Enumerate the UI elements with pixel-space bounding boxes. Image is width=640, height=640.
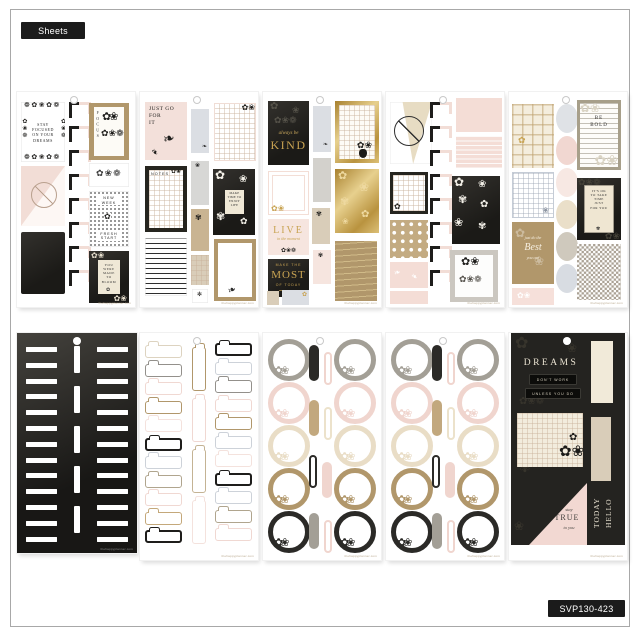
sticker-plaid: ✿ xyxy=(512,104,554,168)
flower-icon: ✻ xyxy=(197,293,202,298)
punch-hole xyxy=(193,96,201,104)
flower-icon: ✿ xyxy=(104,213,111,220)
corner-sticker xyxy=(69,222,85,238)
sticker-sketch-flowers: ✿❀❁ xyxy=(89,163,129,187)
flower-icon: ✾ xyxy=(596,227,600,232)
flower-icon: ✾ xyxy=(478,222,486,231)
sticker-blue-frame: ❀ xyxy=(512,172,554,218)
quote-stay-focused: STAY FOCUSED ON YOUR DREAMS xyxy=(29,122,57,143)
sticker-sheet-8: thehappyplanner.com xyxy=(263,333,381,560)
tab-sticker xyxy=(215,491,252,504)
sticker-sheet-9: thehappyplanner.com xyxy=(386,333,504,560)
strip-sticker xyxy=(26,473,57,478)
paperclip-sticker xyxy=(309,455,317,488)
tab-sticker xyxy=(145,530,182,543)
strip-column-middle xyxy=(74,346,80,546)
quote-just-do: just do the xyxy=(512,235,554,240)
flower-icon: ✿❀ xyxy=(595,154,618,167)
strip-sticker xyxy=(26,537,57,542)
quote-be-bold: BE BOLD xyxy=(580,116,618,129)
sticker-pink-leaves: ❧ ❧ xyxy=(390,262,428,288)
sticker-tan-frame: ❧ xyxy=(214,239,256,301)
flower-icon: ✿❀❁ xyxy=(281,249,296,254)
tab-column-middle xyxy=(192,347,206,551)
strip-sticker xyxy=(26,505,57,510)
ring-sticker xyxy=(391,339,433,381)
ring-sticker xyxy=(391,511,433,553)
corner-sticker xyxy=(430,126,446,142)
sticker-stamp-triangle xyxy=(21,166,65,226)
cream-grid-sticker xyxy=(517,413,583,467)
quote-always-be: always be xyxy=(268,131,309,138)
ring-sticker xyxy=(457,468,499,510)
flower-icon: ❀ xyxy=(195,164,200,169)
watermark: thehappyplanner.com xyxy=(222,301,255,305)
notes-label: NOTES xyxy=(151,172,169,177)
punch-hole xyxy=(562,96,570,104)
grey-frame-inner: ✿❀ ✿❀❁ xyxy=(455,255,493,297)
sticker-polka-tan xyxy=(390,220,428,258)
flower-icon: ❀ xyxy=(542,207,549,214)
quote-unless: UNLESS YOU DO xyxy=(532,392,574,396)
strip-sticker xyxy=(26,442,57,447)
bloom-panel: YOU WERE MADE TO BLOOM ✿ xyxy=(98,260,120,294)
punch-hole xyxy=(70,96,78,104)
sticker-grid-floral: ✿❀ xyxy=(214,103,256,161)
oval-sticker xyxy=(556,104,578,133)
paperclip-sticker xyxy=(309,345,319,381)
sticker-new-week: NEW WEEK ✿ FRESH START xyxy=(89,191,129,247)
paperclip-sticker xyxy=(309,513,319,549)
flower-icon: ✿❀❁ xyxy=(459,275,482,283)
sticker-pink-plain xyxy=(390,291,428,304)
ring-sticker xyxy=(391,425,433,467)
watermark: thehappyplanner.com xyxy=(101,547,134,551)
strip-sticker xyxy=(97,426,128,431)
punch-hole xyxy=(193,337,201,345)
corner-sticker xyxy=(430,174,446,190)
flower-icon: ✿❀ xyxy=(91,252,104,259)
sticker-tan-flower: ✾ xyxy=(191,209,209,251)
strip-sticker xyxy=(74,426,80,453)
sticker-sheet-5: ✿ ✿❀ BE BOLD ✿❀ ❀ ✿❀❁ ✿❀ IT'S OK TO TAKE… xyxy=(509,92,627,307)
leaf-icon: ❧ xyxy=(162,131,177,146)
punch-hole xyxy=(316,337,324,345)
corner-sticker xyxy=(430,246,446,262)
tab-sticker xyxy=(215,528,252,541)
quote-of-today: OF TODAY xyxy=(268,283,309,288)
ring-sticker xyxy=(268,468,310,510)
quote-hello: HELLO xyxy=(604,485,614,541)
flower-icon: ✾ xyxy=(340,198,349,208)
tab-sticker xyxy=(192,449,206,493)
corner-sticker xyxy=(430,270,446,286)
paperclip-sticker xyxy=(432,345,442,381)
tab-sticker xyxy=(215,417,252,430)
quote-you-can: you can xyxy=(512,255,554,260)
sticker-just-go: JUST GO FOR IT ❧ ❧ xyxy=(145,102,187,160)
tab-sticker xyxy=(145,438,182,451)
sticker-dense-floral: ✿ ❀ ✾ ✿ ❀ ✾ xyxy=(452,176,500,244)
its-ok-panel: IT'S OK TO TAKE TIME JUST FOR YOU ✾ xyxy=(584,185,614,233)
paperclip-sticker xyxy=(322,462,332,498)
strip-sticker xyxy=(97,458,128,463)
ring-column-right xyxy=(334,339,376,554)
oval-sticker xyxy=(556,264,578,293)
sticker-grey-gold: ✿ xyxy=(282,290,309,305)
punch-hole xyxy=(73,337,81,345)
ring-sticker xyxy=(268,425,310,467)
watermark: thehappyplanner.com xyxy=(591,554,624,558)
sticker-sheet-7: thehappyplanner.com xyxy=(140,333,258,560)
sticker-gold-floral: ✿ ❀ ✾ ✿ ❀ xyxy=(335,169,379,233)
ring-column-left xyxy=(268,339,310,554)
branch-icon: ❧ xyxy=(226,285,237,297)
flower-icon: ✿❀ xyxy=(357,141,372,149)
floral-row-icon: ❁✿❀✿❁ xyxy=(24,103,61,109)
tab-sticker xyxy=(145,345,182,358)
tab-sticker xyxy=(215,510,252,523)
tab-sticker xyxy=(192,347,206,391)
flower-icon: ✿ xyxy=(518,136,526,144)
flower-icon: ❀ xyxy=(342,218,349,225)
flower-icon: ❀ xyxy=(478,180,486,189)
vase-icon xyxy=(359,149,367,158)
gold-frame-inner: ✿❀ xyxy=(339,105,375,159)
ring-sticker xyxy=(334,382,376,424)
oval-sticker xyxy=(556,232,578,261)
corner-sticker-column xyxy=(430,102,446,294)
ring-sticker xyxy=(457,382,499,424)
punch-hole xyxy=(439,337,447,345)
flower-icon: ✿ xyxy=(270,102,278,111)
ring-sticker xyxy=(334,425,376,467)
sticker-tiny-flower: ✻ xyxy=(192,289,208,303)
flower-icon: ✿❀ xyxy=(171,170,181,175)
oval-sticker xyxy=(556,168,578,197)
flower-icon: ✿❀ xyxy=(580,103,600,114)
sticker-black-dots xyxy=(21,232,65,294)
watermark: thehappyplanner.com xyxy=(345,301,378,305)
tab-sticker xyxy=(145,512,182,525)
tab-sticker xyxy=(192,398,206,442)
sticker-tan-flower: ✾ xyxy=(312,208,330,244)
punch-hole xyxy=(563,337,571,345)
sticker-houndstooth xyxy=(577,244,621,300)
sku-label: SVP130-423 xyxy=(559,604,613,614)
tab-sticker xyxy=(192,500,206,544)
ring-sticker xyxy=(457,511,499,553)
watermark: thehappyplanner.com xyxy=(468,301,501,305)
leaf-icon: ❧ xyxy=(202,145,207,150)
quote-make-time: MAKE TIME TO ENJOY LIFE xyxy=(225,192,244,208)
strip-sticker xyxy=(26,379,57,384)
sticker-grey-flower: ❀ xyxy=(191,161,209,205)
paperclip-sticker xyxy=(432,400,442,436)
focus-label: FOCUS xyxy=(95,110,100,139)
strip-sticker xyxy=(97,473,128,478)
flower-icon: ❀ xyxy=(292,106,300,114)
unless-badge: UNLESS YOU DO xyxy=(526,389,580,398)
sku-badge: SVP130-423 xyxy=(548,600,625,617)
strip-sticker xyxy=(74,346,80,373)
sticker-grey-plain xyxy=(313,158,331,202)
sticker-notes: NOTES ✿❀ xyxy=(145,166,187,232)
leaf-icon: ❧ xyxy=(410,272,419,282)
flower-icon: ✿ xyxy=(338,172,347,182)
strip-sticker xyxy=(26,347,57,352)
flower-icon: ✾ xyxy=(195,214,202,221)
flower-icon: ✿ xyxy=(394,203,401,210)
ring-column-left xyxy=(391,339,433,554)
tab-sticker xyxy=(215,454,252,467)
flower-icon: ✿ xyxy=(215,170,225,181)
stamp-circle-icon xyxy=(394,116,424,146)
quote-its-ok: IT'S OK TO TAKE TIME JUST FOR YOU xyxy=(584,189,614,210)
leaf-icon: ❧ xyxy=(149,146,160,157)
sticker-sheet-10: ✿ ❀ ✾ ✿ ❀ ✿❀❁ DREAMS DON'T WORK UNLESS Y… xyxy=(509,333,627,560)
stay-true-triangle: stay TRUE to you xyxy=(529,483,587,545)
sticker-sheet-3: ✿ ❀ ✿❀❁ always be KIND ❧ ✿❀ ✿❀ ✿ ❀ ✾ ✿ ❀… xyxy=(263,92,381,307)
flower-icon: ❀ xyxy=(514,521,524,532)
tab-sticker xyxy=(145,364,182,377)
tab-sticker xyxy=(145,419,182,432)
corner-sticker xyxy=(69,174,85,190)
strip-sticker xyxy=(97,363,128,368)
quote-bloom: YOU WERE MADE TO BLOOM xyxy=(98,263,120,284)
sheets-count-badge: Sheets xyxy=(21,22,85,39)
paperclip-sticker xyxy=(432,513,442,549)
sticker-pink-block xyxy=(456,98,502,132)
flower-icon: ❀ xyxy=(239,175,247,184)
strip-sticker xyxy=(26,410,57,415)
watermark: thehappyplanner.com xyxy=(99,301,132,305)
sticker-bloom: ✿❀ ✿❀ YOU WERE MADE TO BLOOM ✿ xyxy=(89,251,129,303)
dont-work-badge: DON'T WORK xyxy=(530,375,576,384)
flower-icon: ✿❀❁ xyxy=(274,116,297,124)
strip-sticker xyxy=(97,489,128,494)
sticker-sheet-6: thehappyplanner.com xyxy=(17,333,137,553)
corner-sticker-column xyxy=(69,102,85,294)
flower-icon: ✿ xyxy=(454,177,464,188)
ring-sticker xyxy=(457,425,499,467)
tab-column-right xyxy=(215,343,252,547)
oval-sticker xyxy=(556,200,578,229)
strip-sticker xyxy=(74,386,80,413)
sticker-be-bold: ✿❀ BE BOLD ✿❀ xyxy=(577,100,621,170)
tab-sticker xyxy=(215,436,252,449)
punch-hole xyxy=(316,96,324,104)
sticker-lines xyxy=(145,238,187,296)
corner-sticker xyxy=(430,150,446,166)
corner-sticker xyxy=(430,198,446,214)
quote-today: TODAY xyxy=(592,485,602,541)
stamp-circle-icon xyxy=(31,182,57,208)
sticker-stay-focused: ❁✿❀✿❁ ❁✿❀✿❁ ✿❀❁ ✿❀❁ STAY FOCUSED ON YOUR… xyxy=(21,102,65,162)
punch-hole xyxy=(439,96,447,104)
tab-sticker xyxy=(215,399,252,412)
tab-sticker xyxy=(145,493,182,506)
sticker-make-time: ✿ ❀ ✾ ✿ MAKE TIME TO ENJOY LIFE xyxy=(213,169,255,235)
ring-sticker xyxy=(268,339,310,381)
flower-icon: ❀ xyxy=(454,219,463,229)
strip-sticker xyxy=(97,379,128,384)
sticker-sheet-2: JUST GO FOR IT ❧ ❧ ❧ ✿❀ NOTES ✿❀ ❀ ✿ ❀ ✾… xyxy=(140,92,258,307)
sticker-gold-frame: ✿❀ xyxy=(335,101,379,163)
strip-sticker xyxy=(26,394,57,399)
flower-icon: ✾ xyxy=(318,254,323,259)
sticker-best-you-can: ✿ ❀ just do the Best you can xyxy=(512,222,554,284)
sticker-sheet-1: ❁✿❀✿❁ ❁✿❀✿❁ ✿❀❁ ✿❀❁ STAY FOCUSED ON YOUR… xyxy=(17,92,135,307)
sticker-focus: ✿❀ ✿❀❁ FOCUS xyxy=(89,103,129,160)
strip-column-left xyxy=(26,347,57,552)
quote-in-the-moment: in the moment xyxy=(268,236,309,241)
strip-sticker xyxy=(97,347,128,352)
strip-sticker xyxy=(97,394,128,399)
tab-sticker xyxy=(145,382,182,395)
paperclip-sticker xyxy=(447,520,455,553)
oval-sticker-column xyxy=(556,104,578,296)
flower-icon: ✿❀❁ xyxy=(519,397,544,406)
strip-sticker xyxy=(26,363,57,368)
flower-icon: ✿ xyxy=(240,217,248,225)
corner-sticker xyxy=(69,102,85,118)
sticker-stamp-triangle xyxy=(390,102,432,164)
paperclip-sticker xyxy=(432,455,440,488)
sticker-grey-leaf: ❧ xyxy=(313,106,331,152)
tab-sticker xyxy=(145,456,182,469)
strip-column-right xyxy=(97,347,128,552)
watermark: thehappyplanner.com xyxy=(468,554,501,558)
strip-sticker xyxy=(97,537,128,542)
leaf-icon: ❧ xyxy=(393,268,402,277)
flower-icon: ✿❀ xyxy=(517,292,530,299)
sheets-label: Sheets xyxy=(38,26,68,36)
sticker-pink-lined xyxy=(456,136,502,168)
floral-row-icon: ❁✿❀✿❁ xyxy=(24,155,61,161)
leaf-icon: ❧ xyxy=(323,143,328,148)
corner-sticker xyxy=(430,102,446,118)
corner-sticker xyxy=(69,270,85,286)
watermark: thehappyplanner.com xyxy=(591,301,624,305)
corner-sticker xyxy=(69,246,85,262)
sticker-tan-script xyxy=(335,241,377,301)
strip-sticker xyxy=(26,458,57,463)
ring-sticker xyxy=(391,382,433,424)
flower-icon: ✿ xyxy=(302,293,307,298)
strip-sticker xyxy=(26,521,57,526)
strip-sticker xyxy=(74,506,80,533)
strip-sticker xyxy=(97,442,128,447)
sticker-blush-frame: ✿❀ xyxy=(268,171,309,215)
quote-dreams: DREAMS xyxy=(513,357,589,369)
quote-make-the: MAKE THE xyxy=(268,263,309,268)
quote-dont-work: DON'T WORK xyxy=(537,378,569,382)
corner-sticker xyxy=(430,222,446,238)
quote-to-you: to you xyxy=(555,525,583,531)
tan-rect-sticker xyxy=(591,417,611,481)
flower-icon: ✿ xyxy=(480,200,488,209)
corner-sticker xyxy=(69,150,85,166)
ring-sticker xyxy=(334,339,376,381)
ring-sticker xyxy=(391,468,433,510)
tab-sticker xyxy=(145,401,182,414)
tab-sticker xyxy=(215,362,252,375)
quote-most: MOST xyxy=(268,268,309,282)
black-floral-panel: ✿ ❀ ✾ ✿ ❀ ✿❀❁ DREAMS DON'T WORK UNLESS Y… xyxy=(511,333,625,545)
watermark: thehappyplanner.com xyxy=(222,554,255,558)
sticker-pink-flowers: ✿❀ xyxy=(512,288,554,305)
flower-icon: ✿ xyxy=(361,210,369,219)
make-time-panel: MAKE TIME TO ENJOY LIFE xyxy=(225,190,244,214)
sticker-its-ok: ✿❀❁ ✿❀ IT'S OK TO TAKE TIME JUST FOR YOU… xyxy=(577,178,621,240)
sticker-sheet-4: ✿ ✿ ❀ ✾ ✿ ❀ ✾ ❧ ❧ ✿❀ ✿❀❁ thehappyplanner… xyxy=(386,92,504,307)
strip-sticker xyxy=(74,466,80,493)
paperclip-sticker xyxy=(445,462,455,498)
flower-icon: ✿❀ xyxy=(271,205,284,212)
new-week-label: NEW WEEK xyxy=(97,196,121,205)
sticker-blush-flower: ✾ xyxy=(313,250,331,284)
paperclip-sticker xyxy=(309,400,319,436)
quote-true: TRUE xyxy=(551,513,583,523)
quote-stay: stay xyxy=(555,507,583,513)
ring-sticker xyxy=(334,468,376,510)
ring-sticker xyxy=(268,511,310,553)
ring-sticker xyxy=(334,511,376,553)
flower-icon: ✿❀❁ xyxy=(96,169,122,177)
paperclip-sticker xyxy=(447,352,455,385)
paperclip-sticker xyxy=(324,520,332,553)
flower-icon: ✿❀ xyxy=(605,232,620,240)
quote-just-go: JUST GO FOR IT xyxy=(149,106,181,127)
strip-sticker xyxy=(26,426,57,431)
sticker-live: LIVE in the moment ✿❀❁ xyxy=(268,219,309,255)
flower-icon: ✿ xyxy=(515,337,528,351)
ring-sticker xyxy=(268,382,310,424)
paperclip-column xyxy=(432,345,460,568)
ring-sticker xyxy=(457,339,499,381)
cream-rect-sticker xyxy=(591,341,613,403)
paperclip-sticker xyxy=(447,407,455,440)
strip-sticker xyxy=(97,505,128,510)
tab-sticker xyxy=(145,475,182,488)
quote-best: Best xyxy=(512,241,554,254)
ring-column-right xyxy=(457,339,499,554)
sticker-tan-grid xyxy=(191,255,209,285)
tab-column-left xyxy=(145,345,182,549)
sticker-grey-leaf: ❧ xyxy=(191,109,209,153)
strip-sticker xyxy=(97,410,128,415)
flower-icon: ✿❀ xyxy=(242,104,255,111)
strip-sticker xyxy=(26,489,57,494)
paperclip-sticker xyxy=(324,407,332,440)
sticker-grey-frame-floral: ✿❀ ✿❀❁ xyxy=(450,250,498,302)
flower-icon: ❀ xyxy=(359,182,369,193)
oval-sticker xyxy=(556,136,578,165)
flower-icon: ✿ xyxy=(106,288,110,293)
flower-icon: ✾ xyxy=(458,196,467,206)
tab-sticker xyxy=(215,343,252,356)
strip-sticker xyxy=(97,521,128,526)
corner-sticker xyxy=(69,198,85,214)
sticker-kind: ✿ ❀ ✿❀❁ always be KIND xyxy=(268,101,309,165)
quote-kind: KIND xyxy=(268,138,309,154)
fresh-start-label: FRESH START xyxy=(97,232,121,241)
flower-icon: ✿❀ xyxy=(461,258,479,268)
paperclip-sticker xyxy=(324,352,332,385)
tab-sticker xyxy=(215,473,252,486)
paperclip-column xyxy=(309,345,337,568)
